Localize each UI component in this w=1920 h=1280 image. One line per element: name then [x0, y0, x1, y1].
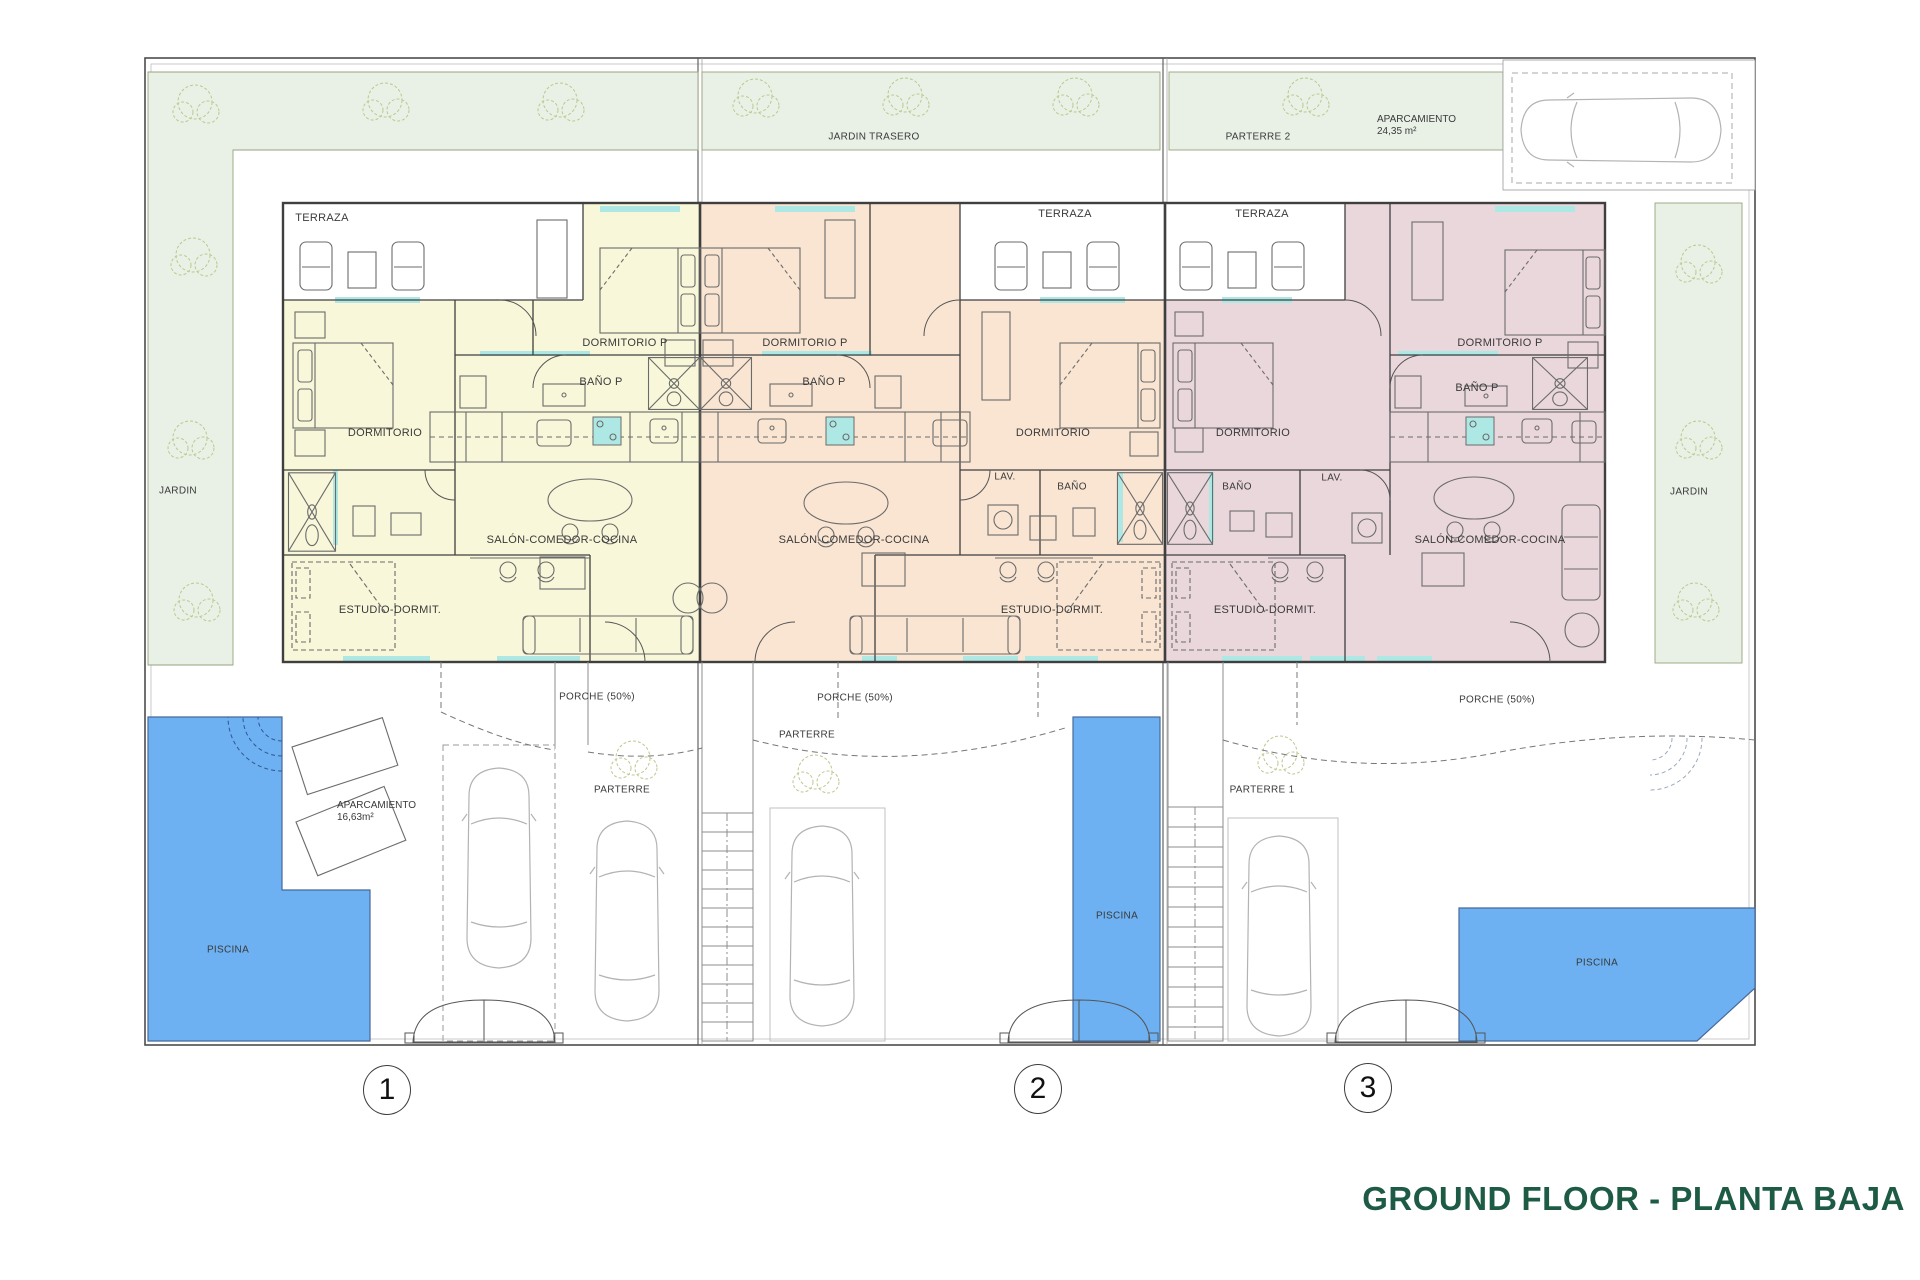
u1-terraza-label: TERRAZA	[295, 212, 348, 224]
u2-dormitorio-label: DORMITORIO	[1016, 427, 1090, 439]
u2-salon-label: SALÓN-COMEDOR-COCINA	[779, 534, 930, 546]
jardin-right-label: JARDIN	[1670, 487, 1708, 498]
unit-2-number: 2	[1030, 1072, 1047, 1106]
parking-pad-top	[1503, 60, 1755, 190]
parterre-2-label: PARTERRE 2	[1226, 132, 1291, 143]
floor-plan-page: JARDIN TRASERO PARTERRE 2 APARCAMIENTO 2…	[0, 0, 1920, 1280]
u1-porche-label: PORCHE (50%)	[559, 692, 635, 703]
u2-estudio-label: ESTUDIO-DORMIT.	[1001, 604, 1103, 616]
u3-terraza-label: TERRAZA	[1235, 208, 1288, 220]
u2-bano-p-label: BAÑO P	[802, 376, 845, 388]
u1-piscina-label: PISCINA	[207, 945, 249, 956]
unit-1-number-badge: 1	[363, 1065, 411, 1115]
u1-salon-label: SALÓN-COMEDOR-COCINA	[487, 534, 638, 546]
u3-dormitorio-label: DORMITORIO	[1216, 427, 1290, 439]
parking-top-name: APARCAMIENTO	[1377, 114, 1456, 126]
u3-lav-label: LAV.	[1321, 473, 1342, 484]
floor-plan-drawing	[0, 0, 1920, 1280]
unit-2-number-badge: 2	[1014, 1064, 1062, 1114]
u2-lav-label: LAV.	[994, 472, 1015, 483]
unit1-floor	[283, 203, 700, 662]
jardin-left-label: JARDIN	[159, 486, 197, 497]
u3-salon-label: SALÓN-COMEDOR-COCINA	[1415, 534, 1566, 546]
u1-parking-name: APARCAMIENTO	[337, 800, 416, 812]
u2-terraza-label: TERRAZA	[1038, 208, 1091, 220]
u1-parterre-label: PARTERRE	[594, 785, 650, 796]
u2-porche-label: PORCHE (50%)	[817, 693, 893, 704]
u1-bano-p-label: BAÑO P	[579, 376, 622, 388]
u3-porche-label: PORCHE (50%)	[1459, 695, 1535, 706]
u1-parking-label: APARCAMIENTO 16,63m²	[337, 800, 416, 824]
unit-3-number: 3	[1360, 1071, 1377, 1105]
u3-bano-label: BAÑO	[1222, 482, 1252, 493]
u1-dormitorio-p-label: DORMITORIO P	[582, 337, 667, 349]
u3-bano-p-label: BAÑO P	[1455, 382, 1498, 394]
u3-dormitorio-p-label: DORMITORIO P	[1457, 337, 1542, 349]
parking-top-label: APARCAMIENTO 24,35 m²	[1377, 114, 1456, 138]
parking-top-area: 24,35 m²	[1377, 126, 1456, 138]
u1-parking-area: 16,63m²	[337, 812, 416, 824]
u3-estudio-label: ESTUDIO-DORMIT.	[1214, 604, 1316, 616]
unit-1-number: 1	[379, 1073, 396, 1107]
u2-dormitorio-p-label: DORMITORIO P	[762, 337, 847, 349]
jardin-trasero-label: JARDIN TRASERO	[828, 132, 919, 143]
u2-bano-label: BAÑO	[1057, 482, 1087, 493]
u3-piscina-label: PISCINA	[1576, 958, 1618, 969]
page-title: GROUND FLOOR - PLANTA BAJA	[1300, 1180, 1905, 1218]
u3-parterre-label: PARTERRE 1	[1230, 785, 1295, 796]
u1-dormitorio-label: DORMITORIO	[348, 427, 422, 439]
unit-3-number-badge: 3	[1344, 1063, 1392, 1113]
u2-piscina-label: PISCINA	[1096, 911, 1138, 922]
u2-parterre-label: PARTERRE	[779, 730, 835, 741]
u1-estudio-label: ESTUDIO-DORMIT.	[339, 604, 441, 616]
